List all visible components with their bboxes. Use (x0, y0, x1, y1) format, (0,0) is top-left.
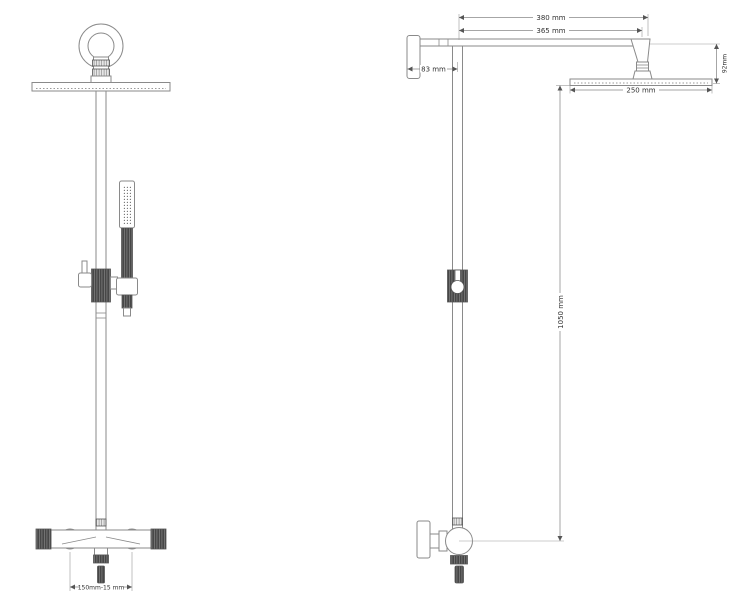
dim-label-wall-offset: 83 mm (421, 66, 446, 74)
head-elbow (631, 39, 652, 79)
hose-nut (122, 295, 132, 308)
outlet-spout (98, 566, 105, 583)
valve-wall-flange (417, 521, 430, 558)
valve-spout (455, 566, 464, 583)
mixer-valve-front (36, 529, 166, 583)
dim-label-arm-to-head: 365 mm (536, 27, 565, 35)
dim-label-head-width: 250 mm (626, 87, 655, 95)
dim-label-arm-overall: 380 mm (536, 14, 565, 22)
drawing-canvas: 150mm-15 mm (0, 0, 738, 600)
shower-technical-drawing: 150mm-15 mm (0, 0, 738, 600)
overhead-shower-head-side (570, 79, 712, 86)
hand-shower-handle (122, 228, 133, 281)
dim-label-riser-height: 1050 mm (557, 295, 565, 329)
valve-nut (451, 556, 468, 565)
top-arm (420, 39, 634, 46)
dim-arm-to-head: 365 mm (459, 27, 642, 38)
hand-shower-face (122, 186, 132, 224)
valve-fitting (430, 534, 439, 548)
elbow-nut (637, 62, 649, 71)
wall-flange (407, 36, 420, 79)
hose-end (124, 308, 131, 316)
overhead-shower-head (32, 83, 170, 92)
holder-knob (451, 281, 464, 294)
dim-label-head-drop: 92mm (722, 54, 729, 73)
side-view: 380 mm 365 mm 83 mm 92mm (407, 14, 729, 584)
riser-pipe (96, 91, 106, 530)
diverter-pin (82, 261, 87, 273)
dim-label-inlet-spacing: 150mm-15 mm (78, 585, 125, 592)
dim-riser-height: 1050 mm (459, 86, 570, 542)
left-handle-knob (36, 529, 51, 549)
head-mount (633, 71, 652, 79)
outlet-fitting (95, 548, 108, 555)
diverter-lever (79, 273, 92, 287)
valve-body (51, 530, 151, 548)
right-handle-knob (151, 529, 166, 549)
hand-shower-holder (117, 278, 138, 295)
hand-shower (117, 181, 138, 316)
shower-arm-ring (79, 24, 123, 83)
dim-head-width: 250 mm (570, 86, 712, 95)
outlet-nut (94, 555, 109, 563)
mixer-valve-side (417, 521, 473, 583)
front-view: 150mm-15 mm (32, 24, 170, 592)
slider-bracket-side (448, 270, 468, 302)
dim-head-drop: 92mm (650, 44, 729, 84)
